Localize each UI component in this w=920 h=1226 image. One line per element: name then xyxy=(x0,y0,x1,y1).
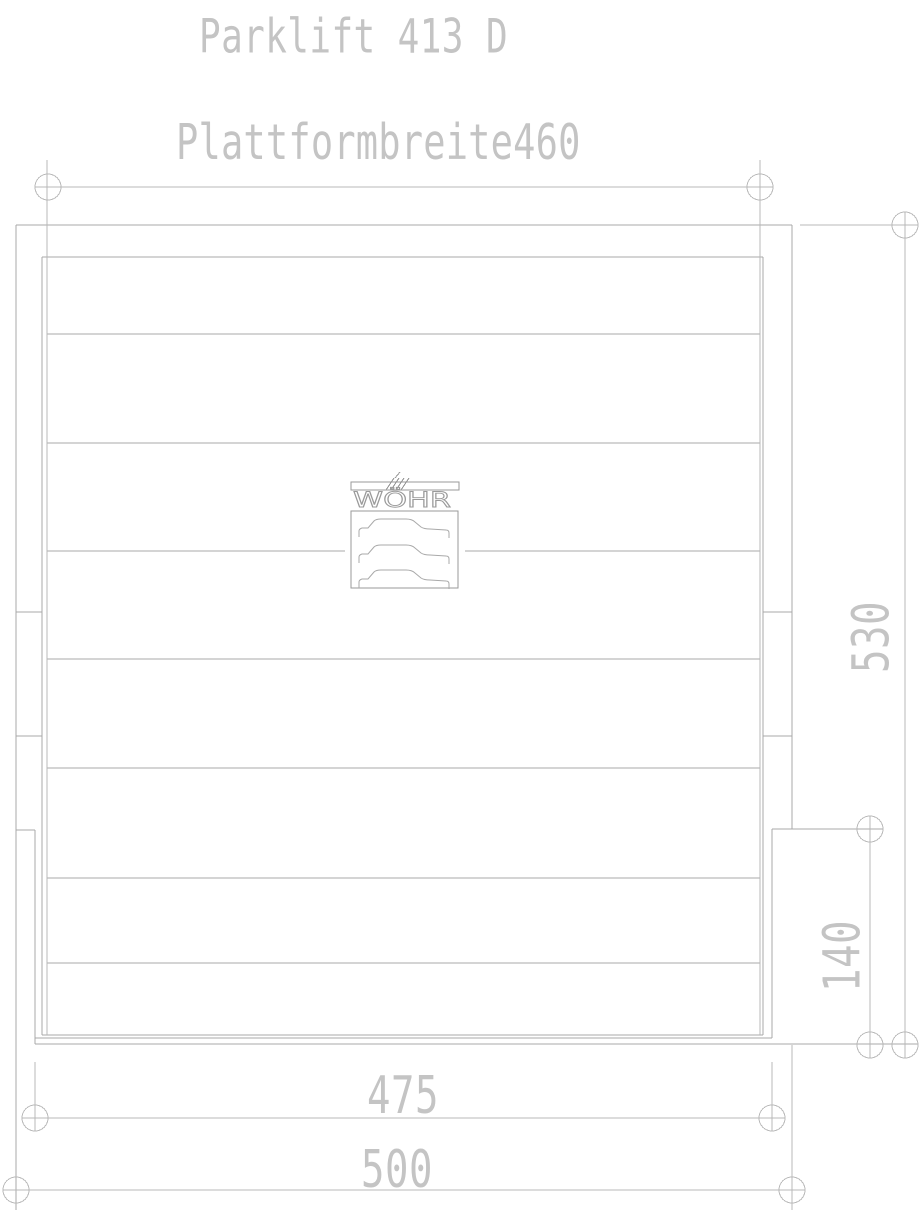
logo-brand-text: WÖHR xyxy=(353,487,451,512)
cad-sheet: WÖHR Parklift 413 D Plattformbreite460 4… xyxy=(0,0,920,1226)
lift-pit-outline xyxy=(16,225,918,1210)
technical-drawing: WÖHR xyxy=(0,0,920,1226)
dimension-endpoint-circles xyxy=(3,174,918,1203)
dimension-label-140: 140 xyxy=(818,920,869,992)
dimension-label-530: 530 xyxy=(847,601,898,673)
platform-planks xyxy=(47,334,760,963)
dimension-lines xyxy=(3,160,918,1210)
woehr-logo: WÖHR xyxy=(351,472,459,589)
drawing-title: Parklift 413 D xyxy=(199,14,508,62)
drawing-subtitle: Plattformbreite460 xyxy=(176,118,581,167)
logo-car-box xyxy=(351,511,458,588)
dimension-label-500: 500 xyxy=(361,1145,433,1196)
dimension-label-475: 475 xyxy=(367,1071,439,1122)
